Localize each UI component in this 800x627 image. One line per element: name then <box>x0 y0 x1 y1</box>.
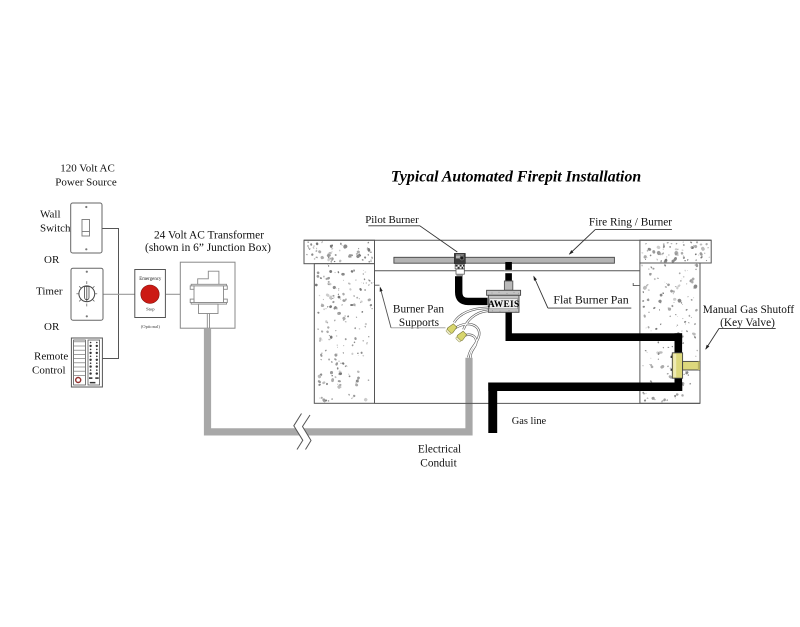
svg-text:(Optional): (Optional) <box>141 324 161 329</box>
svg-text:Stop: Stop <box>146 307 155 312</box>
svg-text:Burner Pan: Burner Pan <box>393 304 444 316</box>
svg-text:Wall: Wall <box>40 209 61 221</box>
svg-text:Emergency: Emergency <box>139 277 162 282</box>
svg-text:AWEIS: AWEIS <box>488 300 519 310</box>
svg-text:Power Source: Power Source <box>55 177 117 189</box>
svg-text:24 Volt AC Transformer: 24 Volt AC Transformer <box>154 230 264 242</box>
svg-text:Switch: Switch <box>40 223 71 235</box>
svg-text:Control: Control <box>32 365 66 377</box>
svg-text:(shown in 6” Junction Box): (shown in 6” Junction Box) <box>145 242 271 254</box>
svg-text:Timer: Timer <box>36 286 63 298</box>
svg-text:Flat Burner Pan: Flat Burner Pan <box>553 292 628 306</box>
svg-text:Electrical: Electrical <box>418 444 461 456</box>
svg-text:OR: OR <box>44 321 60 333</box>
svg-text:Pilot Burner: Pilot Burner <box>365 214 419 226</box>
svg-text:(Key Valve): (Key Valve) <box>720 317 775 329</box>
svg-text:Gas line: Gas line <box>512 416 547 427</box>
svg-text:Fire Ring / Burner: Fire Ring / Burner <box>589 217 672 229</box>
svg-text:120 Volt AC: 120 Volt AC <box>60 163 115 175</box>
svg-text:Typical Automated Firepit Inst: Typical Automated Firepit Installation <box>391 169 641 186</box>
svg-text:Conduit: Conduit <box>420 457 457 469</box>
svg-text:OR: OR <box>44 254 60 266</box>
svg-text:Remote: Remote <box>34 351 68 363</box>
svg-text:Manual Gas Shutoff: Manual Gas Shutoff <box>703 304 795 316</box>
